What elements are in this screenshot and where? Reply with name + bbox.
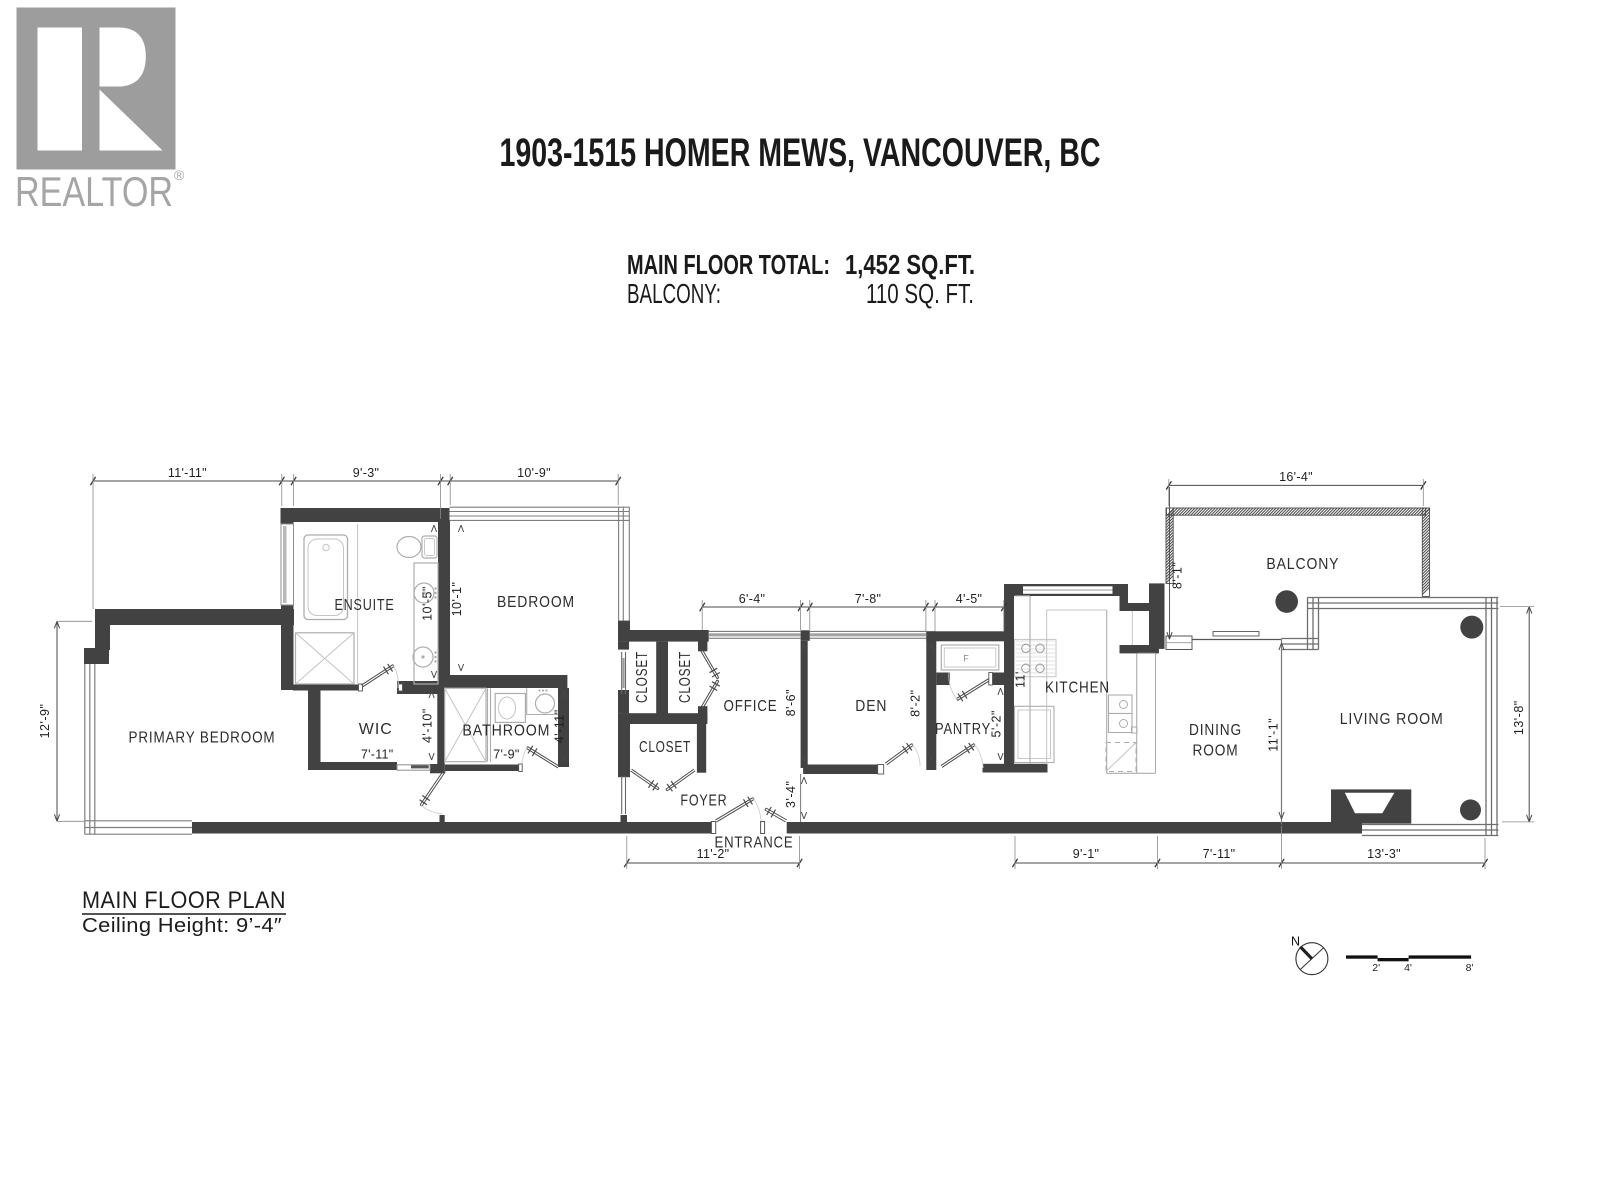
svg-text:10'-1": 10'-1" bbox=[450, 582, 464, 617]
svg-text:10'-9": 10'-9" bbox=[517, 466, 551, 480]
svg-text:OFFICE: OFFICE bbox=[724, 698, 778, 715]
svg-text:BEDROOM: BEDROOM bbox=[497, 594, 575, 611]
svg-text:CLOSET: CLOSET bbox=[634, 651, 651, 703]
svg-text:4'-5": 4'-5" bbox=[956, 592, 982, 606]
svg-text:16'-4": 16'-4" bbox=[1279, 470, 1313, 484]
svg-text:13'-3": 13'-3" bbox=[1367, 847, 1401, 861]
svg-text:7'-9": 7'-9" bbox=[493, 748, 519, 762]
svg-text:11'-11": 11'-11" bbox=[168, 466, 207, 480]
svg-text:8'-1": 8'-1" bbox=[1171, 562, 1185, 589]
svg-text:7'-11": 7'-11" bbox=[361, 748, 394, 762]
svg-text:BALCONY: BALCONY bbox=[1266, 556, 1339, 573]
svg-text:PRIMARY BEDROOM: PRIMARY BEDROOM bbox=[129, 730, 276, 747]
svg-text:BATHROOM: BATHROOM bbox=[462, 723, 550, 740]
svg-text:ENTRANCE: ENTRANCE bbox=[715, 835, 794, 852]
svg-text:7'-8": 7'-8" bbox=[855, 592, 881, 606]
svg-text:110 SQ. FT.: 110 SQ. FT. bbox=[866, 278, 974, 309]
svg-text:F: F bbox=[963, 654, 969, 664]
svg-text:1903-1515 HOMER MEWS, VANCOUVE: 1903-1515 HOMER MEWS, VANCOUVER, BC bbox=[500, 131, 1101, 175]
svg-text:LIVING ROOM: LIVING ROOM bbox=[1340, 711, 1444, 728]
svg-text:Ceiling Height: 9’-4″: Ceiling Height: 9’-4″ bbox=[82, 914, 282, 937]
svg-text:BALCONY:: BALCONY: bbox=[627, 278, 721, 309]
svg-text:9'-1": 9'-1" bbox=[1073, 847, 1099, 861]
svg-text:4'-11": 4'-11" bbox=[553, 709, 567, 743]
svg-text:3'-4": 3'-4" bbox=[784, 781, 798, 808]
svg-text:6'-4": 6'-4" bbox=[739, 592, 765, 606]
svg-text:4'-10": 4'-10" bbox=[421, 708, 435, 743]
svg-text:CLOSET: CLOSET bbox=[639, 739, 691, 756]
svg-text:8'-6": 8'-6" bbox=[784, 689, 798, 716]
svg-text:PANTRY: PANTRY bbox=[935, 721, 991, 738]
svg-text:2': 2' bbox=[1372, 962, 1380, 974]
svg-text:8'-2": 8'-2" bbox=[908, 690, 922, 717]
svg-text:®: ® bbox=[174, 167, 185, 183]
svg-text:5'-2": 5'-2" bbox=[990, 710, 1004, 737]
svg-text:N: N bbox=[1291, 935, 1300, 949]
svg-text:DINING: DINING bbox=[1189, 722, 1242, 739]
svg-text:10'-5": 10'-5" bbox=[421, 586, 435, 621]
svg-text:DEN: DEN bbox=[855, 698, 887, 715]
svg-text:MAIN FLOOR PLAN: MAIN FLOOR PLAN bbox=[82, 887, 286, 914]
svg-text:REALTOR: REALTOR bbox=[15, 168, 173, 215]
svg-text:MAIN FLOOR TOTAL:: MAIN FLOOR TOTAL: bbox=[627, 249, 830, 280]
svg-text:FOYER: FOYER bbox=[680, 793, 727, 810]
svg-text:11'-1": 11'-1" bbox=[1266, 718, 1280, 752]
svg-text:7'-11": 7'-11" bbox=[1203, 847, 1236, 861]
svg-text:13'-8": 13'-8" bbox=[1512, 700, 1526, 735]
svg-text:1,452 SQ.FT.: 1,452 SQ.FT. bbox=[845, 249, 975, 280]
svg-text:12'-9": 12'-9" bbox=[38, 704, 52, 739]
svg-text:4': 4' bbox=[1404, 962, 1412, 974]
svg-text:WIC: WIC bbox=[359, 721, 393, 738]
svg-text:KITCHEN: KITCHEN bbox=[1045, 680, 1110, 697]
svg-text:ROOM: ROOM bbox=[1193, 742, 1239, 759]
svg-text:8': 8' bbox=[1466, 962, 1474, 974]
svg-text:ENSUITE: ENSUITE bbox=[335, 597, 395, 614]
svg-text:CLOSET: CLOSET bbox=[677, 651, 694, 703]
svg-text:9'-3": 9'-3" bbox=[353, 466, 379, 480]
svg-text:11': 11' bbox=[1013, 671, 1027, 688]
